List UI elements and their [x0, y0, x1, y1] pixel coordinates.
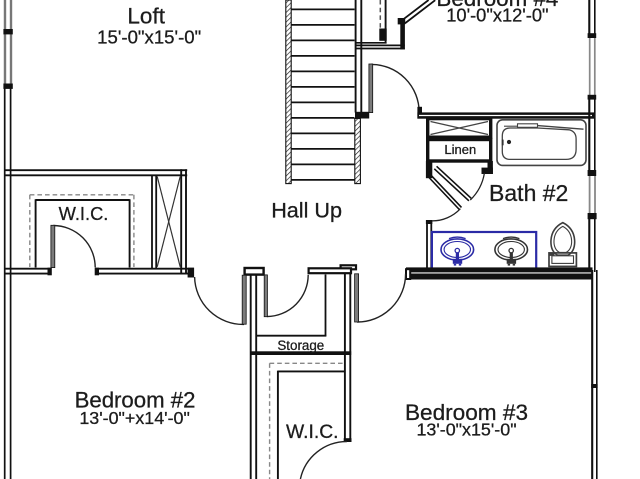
- svg-text:15'-0"x15'-0": 15'-0"x15'-0": [97, 26, 201, 47]
- svg-text:10'-0"x12'-0": 10'-0"x12'-0": [446, 4, 548, 25]
- svg-text:Bath #2: Bath #2: [489, 180, 568, 206]
- svg-text:Storage: Storage: [277, 338, 324, 353]
- svg-text:13'-0"+x14'-0": 13'-0"+x14'-0": [79, 408, 190, 428]
- svg-text:Hall Up: Hall Up: [271, 198, 342, 223]
- svg-text:W.I.C.: W.I.C.: [286, 422, 339, 443]
- svg-text:Loft: Loft: [127, 4, 165, 29]
- svg-text:Linen: Linen: [444, 142, 476, 157]
- svg-text:W.I.C.: W.I.C.: [59, 203, 109, 224]
- svg-text:13'-0"x15'-0": 13'-0"x15'-0": [416, 419, 516, 439]
